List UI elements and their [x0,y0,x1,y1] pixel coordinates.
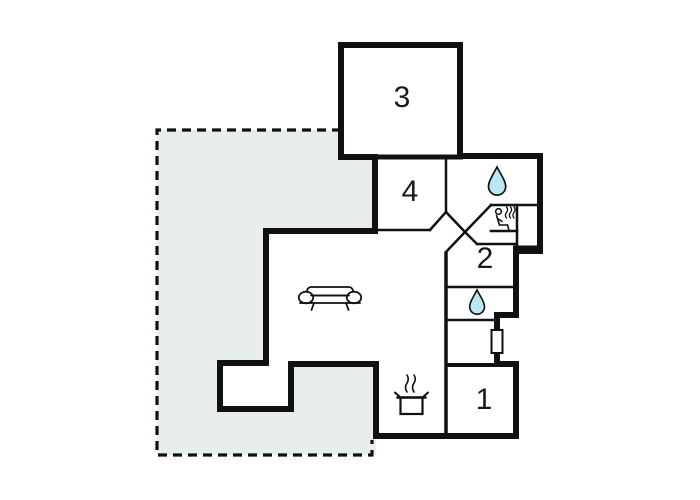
floor-plan-svg [0,0,700,500]
room-1-label: 1 [476,385,493,415]
house-outline-walls [220,45,540,436]
floor-plan-canvas: 3 4 2 1 [0,0,700,500]
room-3-label: 3 [394,83,411,113]
room-2-label: 2 [477,244,494,274]
room-4-label: 4 [402,177,419,207]
window-symbol [492,330,503,353]
